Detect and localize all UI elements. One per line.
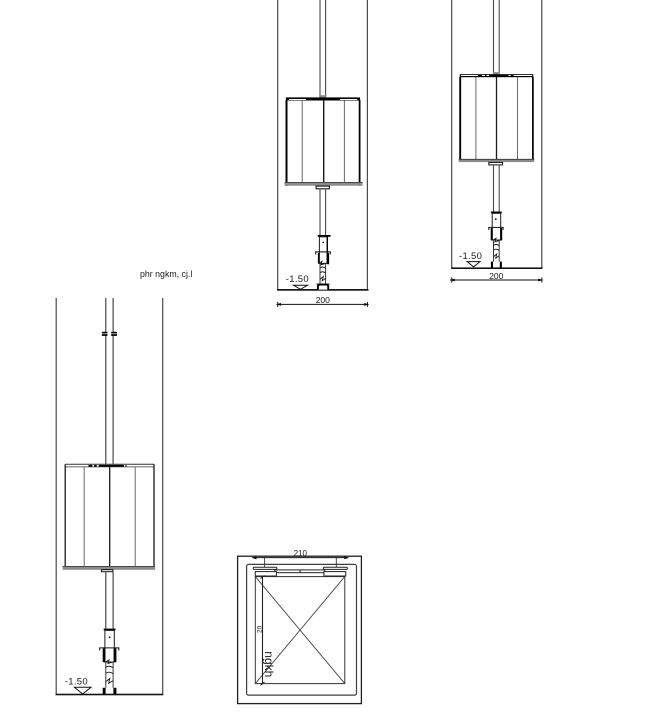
svg-text:200: 200 <box>489 271 503 281</box>
svg-text:20: 20 <box>257 625 264 633</box>
svg-text:-1.50: -1.50 <box>286 274 309 285</box>
svg-text:200: 200 <box>316 295 330 305</box>
svg-text:ngkh: ngkh <box>262 651 276 677</box>
svg-text:phr ngkm, cj.l: phr ngkm, cj.l <box>140 269 192 279</box>
svg-text:-1.50: -1.50 <box>65 676 88 687</box>
svg-text:210: 210 <box>294 549 308 558</box>
svg-text:-1.50: -1.50 <box>459 251 482 262</box>
